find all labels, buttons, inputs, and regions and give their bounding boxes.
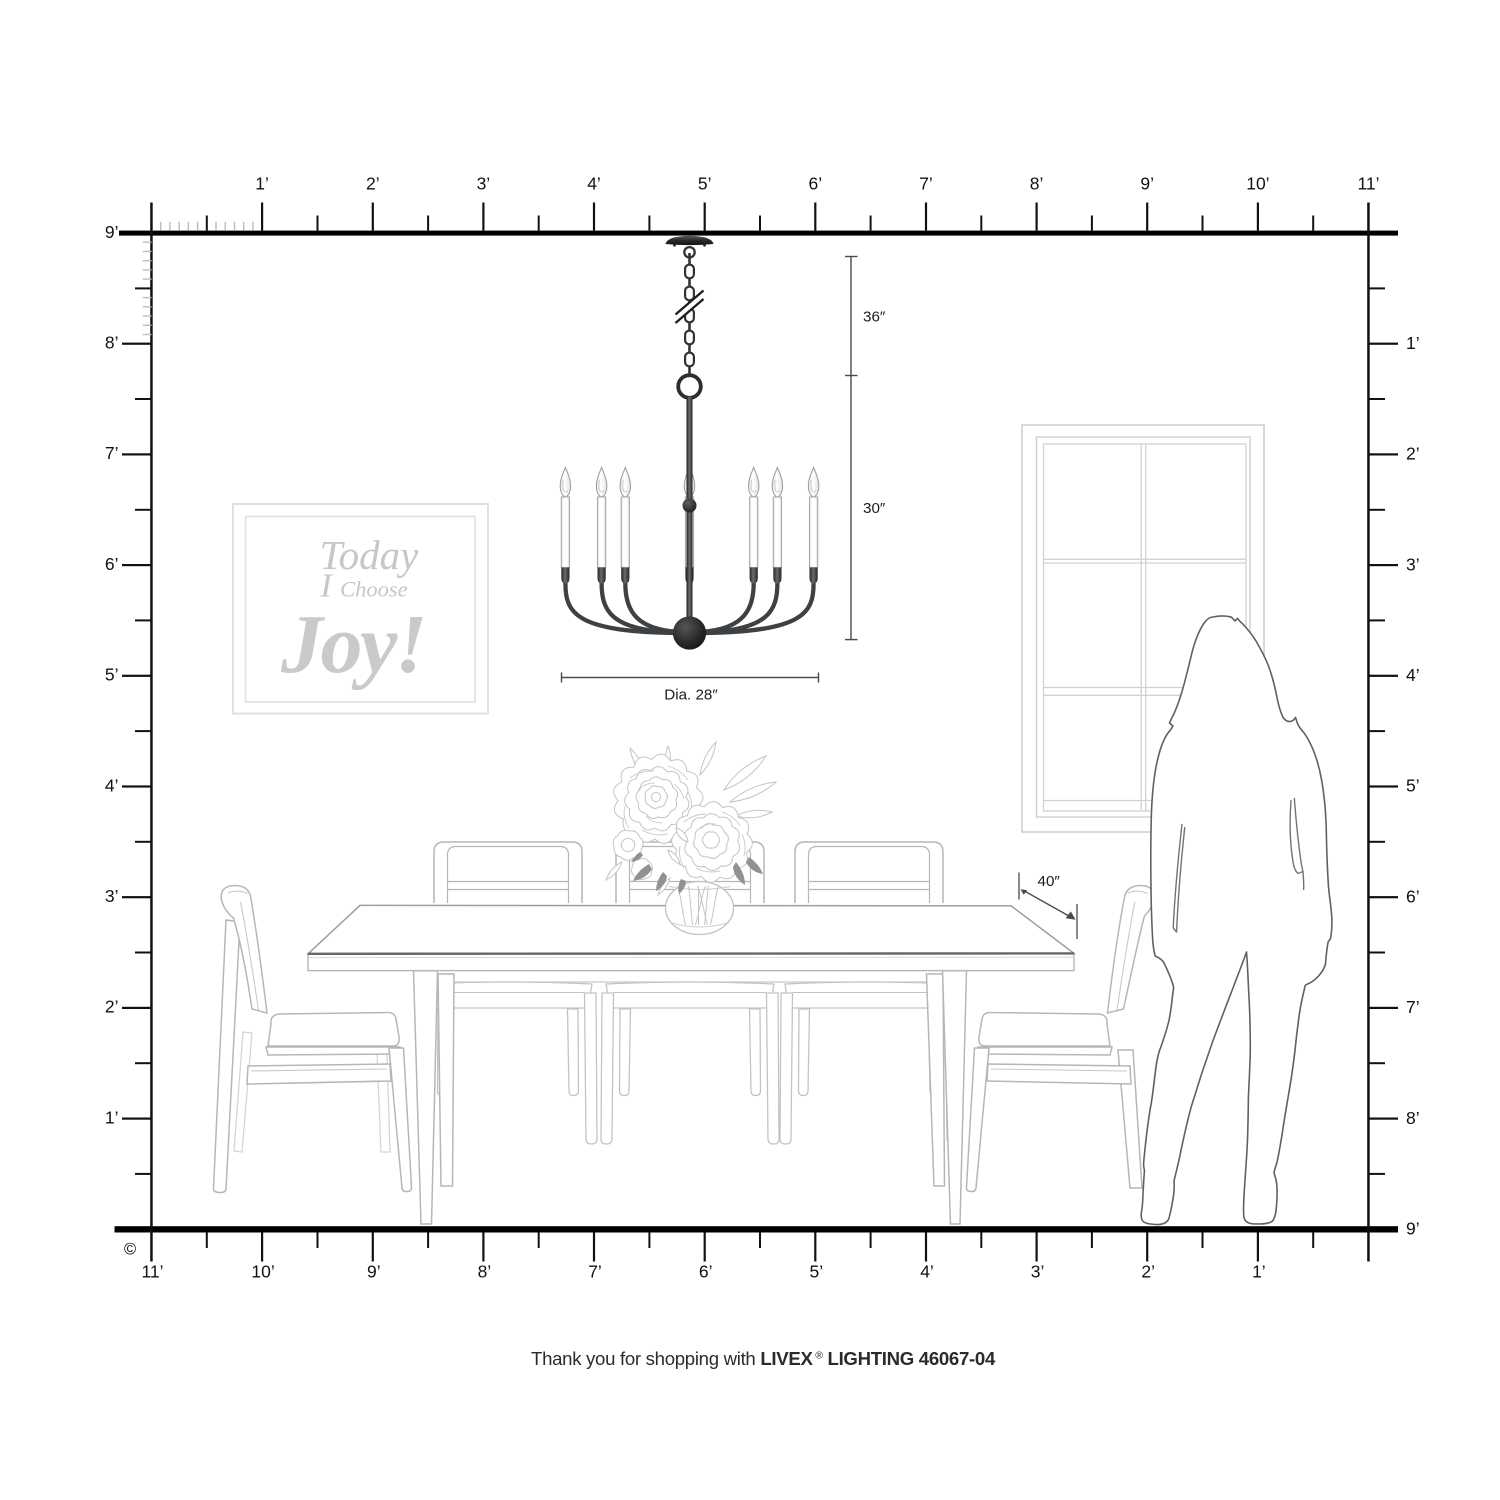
svg-text:8’: 8’ — [105, 333, 119, 353]
svg-text:7’: 7’ — [105, 443, 119, 463]
svg-text:8’: 8’ — [1406, 1108, 1420, 1128]
svg-text:2’: 2’ — [1406, 444, 1420, 464]
svg-text:Thank you for shopping with LI: Thank you for shopping with LIVEX ® LIGH… — [531, 1348, 996, 1369]
svg-text:9’: 9’ — [367, 1262, 381, 1282]
svg-text:5’: 5’ — [105, 665, 119, 685]
svg-text:7’: 7’ — [919, 174, 933, 194]
svg-text:©: © — [124, 1241, 136, 1259]
svg-text:6’: 6’ — [808, 174, 822, 194]
svg-text:10’: 10’ — [251, 1262, 274, 1282]
svg-text:Dia. 28″: Dia. 28″ — [664, 687, 718, 704]
svg-text:6’: 6’ — [1406, 886, 1420, 906]
svg-text:8’: 8’ — [1030, 174, 1044, 194]
svg-text:4’: 4’ — [1406, 665, 1420, 685]
svg-text:Joy!: Joy! — [280, 598, 425, 691]
svg-text:10’: 10’ — [1246, 174, 1269, 194]
svg-text:11’: 11’ — [1357, 174, 1379, 194]
svg-text:9’: 9’ — [1406, 1219, 1420, 1239]
svg-text:7’: 7’ — [588, 1262, 602, 1282]
svg-text:3’: 3’ — [1406, 554, 1420, 574]
svg-text:5’: 5’ — [809, 1262, 823, 1282]
svg-text:30″: 30″ — [863, 500, 886, 517]
svg-text:4’: 4’ — [920, 1262, 934, 1282]
svg-text:3’: 3’ — [477, 174, 491, 194]
svg-text:6’: 6’ — [105, 554, 119, 574]
svg-text:1’: 1’ — [255, 174, 269, 194]
svg-text:3’: 3’ — [105, 886, 119, 906]
svg-text:2’: 2’ — [105, 997, 119, 1017]
svg-text:1’: 1’ — [1406, 333, 1420, 353]
svg-text:8’: 8’ — [478, 1262, 492, 1282]
svg-text:5’: 5’ — [698, 174, 712, 194]
svg-text:6’: 6’ — [699, 1262, 713, 1282]
svg-text:40″: 40″ — [1038, 873, 1061, 890]
svg-text:2’: 2’ — [366, 174, 380, 194]
svg-text:1’: 1’ — [1252, 1262, 1266, 1282]
svg-text:7’: 7’ — [1406, 997, 1420, 1017]
svg-text:9’: 9’ — [105, 222, 119, 242]
svg-text:3’: 3’ — [1031, 1262, 1045, 1282]
svg-text:5’: 5’ — [1406, 776, 1420, 796]
svg-text:4’: 4’ — [587, 174, 601, 194]
svg-text:11’: 11’ — [141, 1262, 163, 1282]
svg-text:9’: 9’ — [1140, 174, 1154, 194]
svg-text:4’: 4’ — [105, 775, 119, 795]
svg-text:2’: 2’ — [1141, 1262, 1155, 1282]
svg-text:1’: 1’ — [105, 1107, 119, 1127]
svg-text:36″: 36″ — [863, 309, 886, 326]
